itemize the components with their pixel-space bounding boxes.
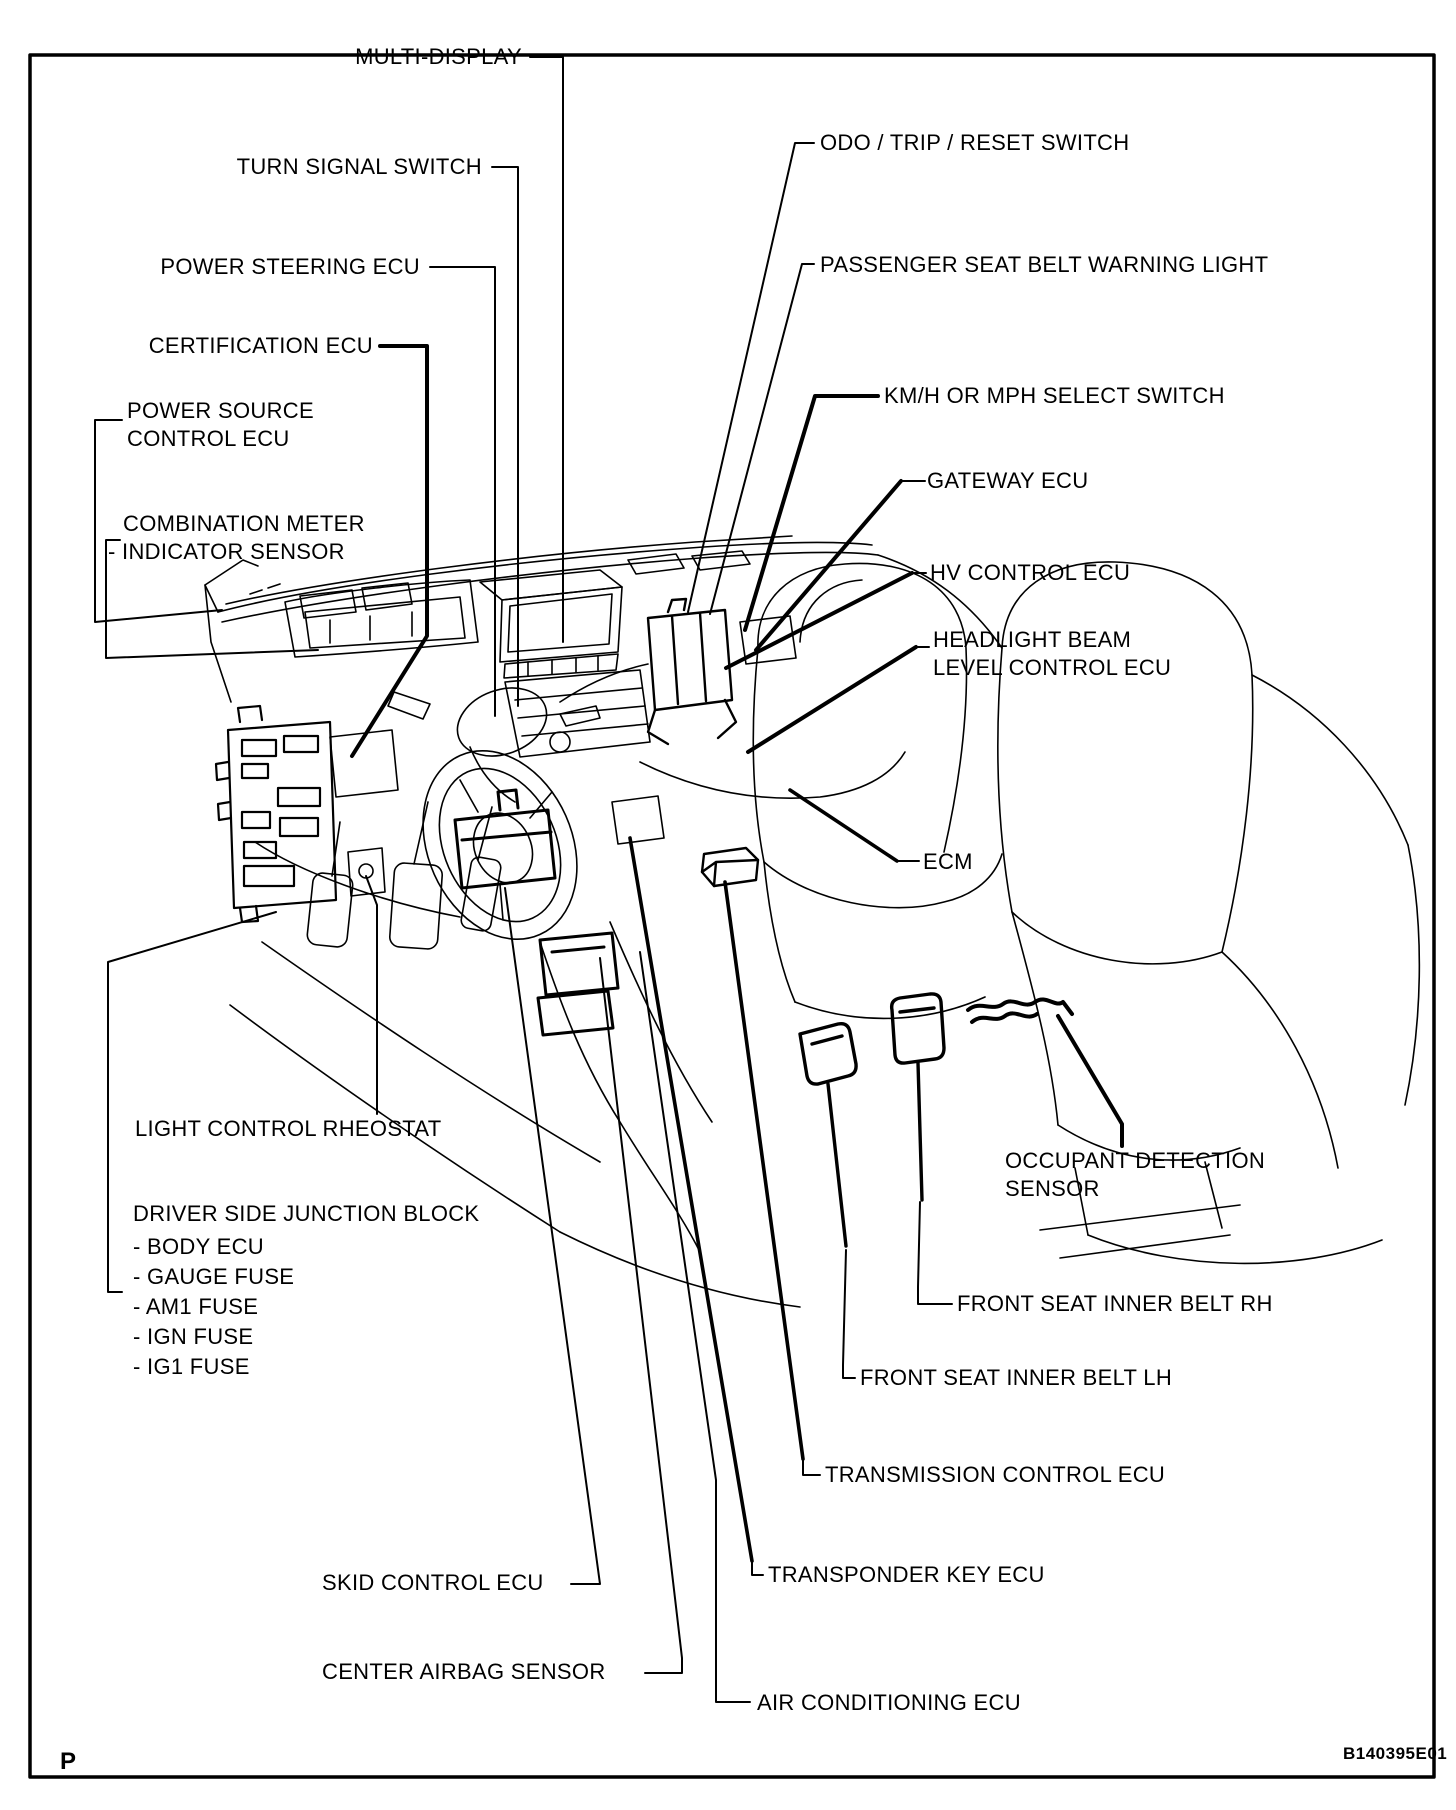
junction-block-item: - IGN FUSE (133, 1322, 479, 1352)
center-airbag-sensor-box (538, 933, 618, 1035)
manual-page: MULTI-DISPLAY TURN SIGNAL SWITCH POWER S… (0, 0, 1456, 1810)
leader-ecm (790, 790, 897, 861)
label-multi-display: MULTI-DISPLAY (355, 44, 522, 70)
label-skid-control-ecu: SKID CONTROL ECU (322, 1570, 544, 1596)
multi-display-unit (480, 570, 622, 678)
transmission-ecu-box (702, 848, 758, 886)
leader-passenger-seat-belt-warning-light (710, 264, 814, 614)
leader-gateway-ecu (756, 481, 901, 650)
junction-block-item: - IG1 FUSE (133, 1352, 479, 1382)
junction-block-item: - GAUGE FUSE (133, 1262, 479, 1292)
label-headlight-beam-line2: LEVEL CONTROL ECU (933, 654, 1171, 682)
leader-light-control-rheostat (366, 876, 377, 1114)
leader-transponder-key-ecu-tick (752, 1561, 763, 1575)
junction-block-item: - AM1 FUSE (133, 1292, 479, 1322)
leader-lines (95, 57, 1122, 1702)
occupant-detection-sensor-drawing (968, 999, 1072, 1022)
label-combination-meter-line1: COMBINATION METER (123, 510, 365, 538)
label-turn-signal-switch: TURN SIGNAL SWITCH (237, 154, 482, 180)
leader-front-seat-inner-belt-rh (918, 1202, 952, 1304)
junction-block-item-list: - BODY ECU - GAUGE FUSE - AM1 FUSE - IGN… (133, 1232, 479, 1382)
leader-transmission-control-ecu (725, 882, 803, 1459)
label-light-control-rheostat: LIGHT CONTROL RHEOSTAT (135, 1116, 441, 1142)
label-junction-block-title: DRIVER SIDE JUNCTION BLOCK (133, 1200, 479, 1228)
label-power-source-line1: POWER SOURCE (127, 397, 314, 425)
label-power-steering-ecu: POWER STEERING ECU (160, 254, 420, 280)
figure-code: B140395E01 (1343, 1744, 1447, 1764)
label-occupant-detection-line1: OCCUPANT DETECTION (1005, 1147, 1265, 1175)
label-front-seat-inner-belt-rh: FRONT SEAT INNER BELT RH (957, 1291, 1273, 1317)
label-odo-trip-reset-switch: ODO / TRIP / RESET SWITCH (820, 130, 1129, 156)
leader-front-seat-inner-belt-lh (843, 1250, 855, 1378)
center-stack (505, 670, 905, 1252)
leader-power-steering-ecu (430, 267, 495, 716)
transponder-key-ecu-box (612, 796, 664, 844)
label-hv-control-ecu: HV CONTROL ECU (930, 560, 1130, 586)
front-seat-inner-belt-rh-drawing (892, 994, 944, 1200)
leader-air-conditioning-ecu (640, 952, 750, 1702)
label-transponder-key-ecu: TRANSPONDER KEY ECU (768, 1562, 1045, 1588)
leader-transmission-control-ecu-tick (803, 1459, 820, 1475)
label-occupant-detection-line2: SENSOR (1005, 1175, 1265, 1203)
junction-block-drawing (216, 706, 336, 922)
label-transmission-control-ecu: TRANSMISSION CONTROL ECU (825, 1462, 1165, 1488)
leader-occupant-detection-sensor (1058, 1016, 1122, 1146)
label-occupant-detection-sensor: OCCUPANT DETECTION SENSOR (1005, 1147, 1265, 1203)
hv-ecu-stack (648, 599, 736, 744)
label-combination-meter: COMBINATION METER - INDICATOR SENSOR (108, 510, 365, 566)
label-headlight-beam-line1: HEADLIGHT BEAM (933, 626, 1171, 654)
leader-kmh-mph-select-switch (745, 396, 878, 630)
label-ecm: ECM (923, 849, 973, 875)
label-headlight-beam-level-control-ecu: HEADLIGHT BEAM LEVEL CONTROL ECU (933, 626, 1171, 682)
label-front-seat-inner-belt-lh: FRONT SEAT INNER BELT LH (860, 1365, 1172, 1391)
label-power-source-line2: CONTROL ECU (127, 425, 314, 453)
front-seat-inner-belt-lh-drawing (800, 1024, 856, 1246)
label-center-airbag-sensor: CENTER AIRBAG SENSOR (322, 1659, 606, 1685)
label-kmh-mph-select-switch: KM/H OR MPH SELECT SWITCH (884, 383, 1225, 409)
label-driver-side-junction-block: DRIVER SIDE JUNCTION BLOCK - BODY ECU - … (133, 1200, 479, 1382)
junction-block-item: - BODY ECU (133, 1232, 479, 1262)
label-combination-meter-line2: - INDICATOR SENSOR (108, 538, 365, 566)
label-gateway-ecu: GATEWAY ECU (927, 468, 1088, 494)
label-air-conditioning-ecu: AIR CONDITIONING ECU (757, 1690, 1021, 1716)
label-passenger-seat-belt-warning-light: PASSENGER SEAT BELT WARNING LIGHT (820, 252, 1268, 278)
page-marker: P (60, 1748, 77, 1776)
label-certification-ecu: CERTIFICATION ECU (149, 333, 373, 359)
label-power-source-control-ecu: POWER SOURCE CONTROL ECU (127, 397, 314, 453)
leader-headlight-beam (748, 647, 916, 752)
